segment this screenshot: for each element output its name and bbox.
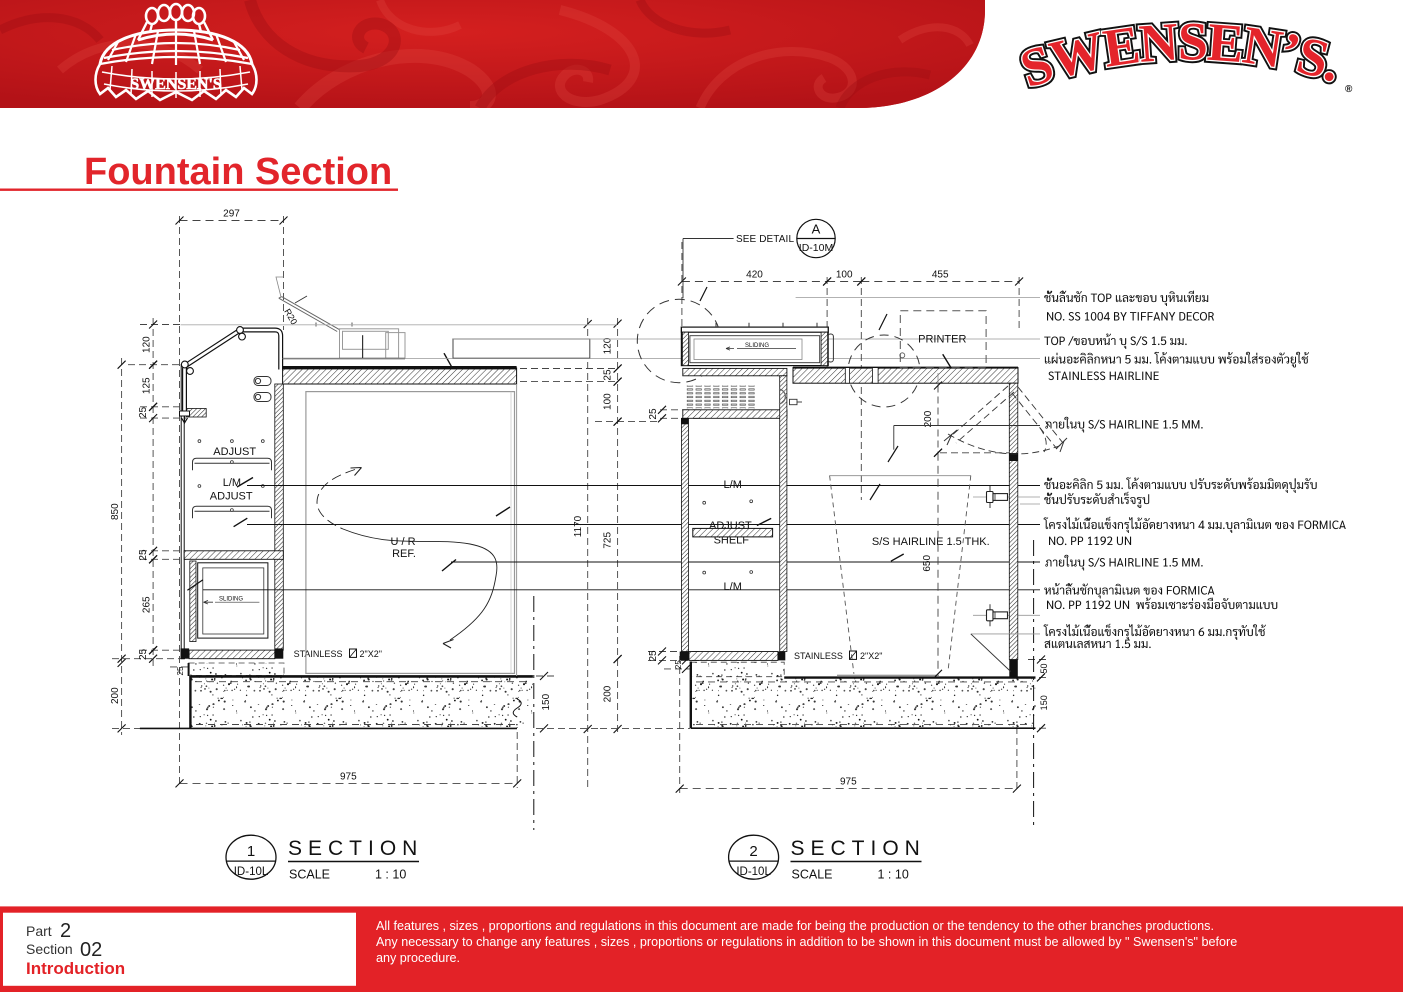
svg-text:2"X2": 2"X2" bbox=[360, 649, 382, 659]
svg-text:Part: Part bbox=[26, 923, 52, 939]
svg-text:200: 200 bbox=[110, 687, 121, 704]
svg-text:200: 200 bbox=[603, 685, 614, 702]
svg-text:975: 975 bbox=[840, 777, 857, 788]
svg-text:L/M: L/M bbox=[724, 581, 742, 593]
svg-text:Fountain Section: Fountain Section bbox=[84, 151, 392, 193]
svg-text:REF.: REF. bbox=[392, 548, 416, 560]
svg-text:®: ® bbox=[1345, 84, 1353, 95]
svg-text:1: 1 bbox=[247, 843, 255, 860]
svg-text:ADJUST: ADJUST bbox=[213, 446, 256, 458]
svg-text:L/M: L/M bbox=[223, 477, 241, 489]
svg-text:297: 297 bbox=[223, 209, 240, 220]
svg-text:SEE DETAIL: SEE DETAIL bbox=[736, 234, 794, 245]
svg-text:1 : 10: 1 : 10 bbox=[375, 868, 406, 882]
svg-text:100: 100 bbox=[836, 270, 853, 281]
svg-text:S/S HAIRLINE 1.5 THK.: S/S HAIRLINE 1.5 THK. bbox=[872, 536, 990, 548]
svg-text:125: 125 bbox=[142, 377, 153, 394]
svg-text:975: 975 bbox=[340, 771, 357, 782]
svg-text:SLIDING: SLIDING bbox=[219, 597, 243, 603]
svg-text:120: 120 bbox=[603, 337, 614, 354]
svg-text:2: 2 bbox=[60, 920, 71, 942]
svg-text:SCALE: SCALE bbox=[289, 868, 330, 882]
svg-text:150: 150 bbox=[1039, 695, 1049, 710]
svg-text:ID-10L: ID-10L bbox=[234, 866, 269, 878]
svg-text:STAINLESS: STAINLESS bbox=[794, 651, 843, 661]
svg-text:25: 25 bbox=[138, 406, 149, 418]
svg-text:50: 50 bbox=[1039, 663, 1049, 673]
svg-text:200: 200 bbox=[923, 410, 934, 427]
svg-text:SECTION: SECTION bbox=[288, 837, 423, 860]
svg-text:2"X2": 2"X2" bbox=[860, 651, 882, 661]
svg-text:25: 25 bbox=[674, 660, 683, 669]
svg-text:SLIDING: SLIDING bbox=[745, 343, 769, 349]
svg-text:420: 420 bbox=[746, 270, 763, 281]
svg-text:U / R: U / R bbox=[390, 536, 415, 548]
svg-text:120: 120 bbox=[142, 336, 153, 353]
svg-text:100: 100 bbox=[603, 393, 614, 410]
svg-text:2: 2 bbox=[749, 843, 757, 860]
svg-text:1 : 10: 1 : 10 bbox=[878, 868, 909, 882]
svg-text:725: 725 bbox=[603, 532, 614, 549]
svg-text:SECTION: SECTION bbox=[791, 837, 926, 860]
svg-text:650: 650 bbox=[922, 555, 933, 572]
svg-text:25: 25 bbox=[138, 648, 149, 660]
svg-text:ID-10M: ID-10M bbox=[799, 242, 833, 254]
svg-text:1170: 1170 bbox=[573, 515, 584, 537]
svg-text:Any necessary to change any fe: Any necessary to change any features , s… bbox=[376, 935, 1237, 949]
svg-text:ADJUST: ADJUST bbox=[210, 491, 253, 503]
svg-text:Introduction: Introduction bbox=[26, 959, 125, 978]
svg-text:25: 25 bbox=[176, 666, 185, 675]
svg-text:25: 25 bbox=[648, 650, 659, 662]
svg-text:25: 25 bbox=[648, 408, 659, 420]
svg-text:455: 455 bbox=[932, 270, 949, 281]
svg-text:SWENSEN'S: SWENSEN'S bbox=[130, 76, 222, 93]
svg-text:850: 850 bbox=[110, 503, 121, 520]
svg-text:L/M: L/M bbox=[724, 479, 742, 491]
svg-text:PRINTER: PRINTER bbox=[918, 334, 966, 346]
svg-text:25: 25 bbox=[603, 369, 614, 381]
svg-text:02: 02 bbox=[80, 939, 102, 961]
svg-text:All features , sizes , proport: All features , sizes , proportions and r… bbox=[376, 919, 1214, 933]
svg-text:Section: Section bbox=[26, 941, 73, 957]
svg-text:ID-10L: ID-10L bbox=[736, 866, 771, 878]
svg-text:any procedure.: any procedure. bbox=[376, 951, 460, 965]
svg-text:25: 25 bbox=[138, 549, 149, 561]
svg-text:265: 265 bbox=[142, 596, 153, 613]
svg-text:A: A bbox=[812, 222, 821, 237]
svg-text:STAINLESS: STAINLESS bbox=[294, 649, 343, 659]
svg-text:150: 150 bbox=[541, 693, 552, 710]
svg-text:SCALE: SCALE bbox=[792, 868, 833, 882]
